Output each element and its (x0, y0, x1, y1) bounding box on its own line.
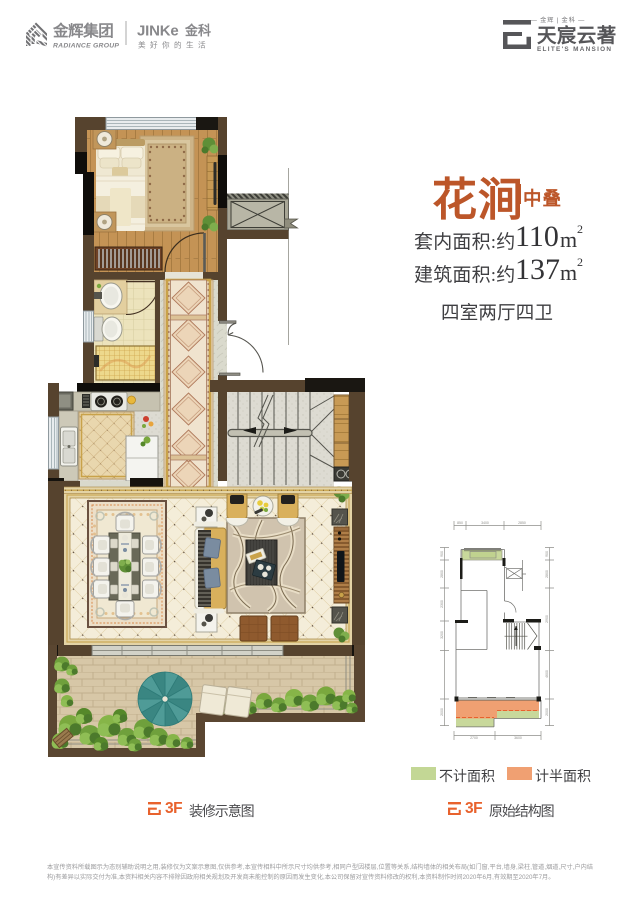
svg-text:2900: 2900 (545, 615, 549, 623)
svg-text:2800: 2800 (440, 570, 444, 578)
svg-text:天宸云著: 天宸云著 (537, 24, 617, 47)
svg-text:2300: 2300 (440, 600, 444, 608)
svg-text:2000: 2000 (545, 708, 549, 716)
svg-text:2000: 2000 (440, 708, 444, 716)
svg-text:美好你的生活: 美好你的生活 (138, 40, 210, 50)
svg-text:JINKe: JINKe (137, 23, 179, 40)
svg-text:金辉集团: 金辉集团 (52, 21, 113, 40)
svg-text:4600: 4600 (545, 670, 549, 678)
svg-text:RADIANCE GROUP: RADIANCE GROUP (53, 43, 119, 50)
svg-text:— 金辉 | 金科 —: — 金辉 | 金科 — (531, 16, 586, 24)
svg-text:2800: 2800 (545, 570, 549, 578)
svg-text:2700: 2700 (470, 736, 478, 740)
svg-text:900: 900 (545, 551, 549, 557)
svg-text:金科: 金科 (184, 23, 211, 38)
svg-text:3400: 3400 (481, 521, 489, 525)
svg-text:2850: 2850 (518, 521, 526, 525)
svg-text:3200: 3200 (440, 631, 444, 639)
svg-text:3600: 3600 (514, 736, 522, 740)
svg-text:900: 900 (440, 551, 444, 557)
svg-text:ELITE'S MANSION: ELITE'S MANSION (537, 46, 612, 53)
svg-text:850: 850 (457, 521, 463, 525)
